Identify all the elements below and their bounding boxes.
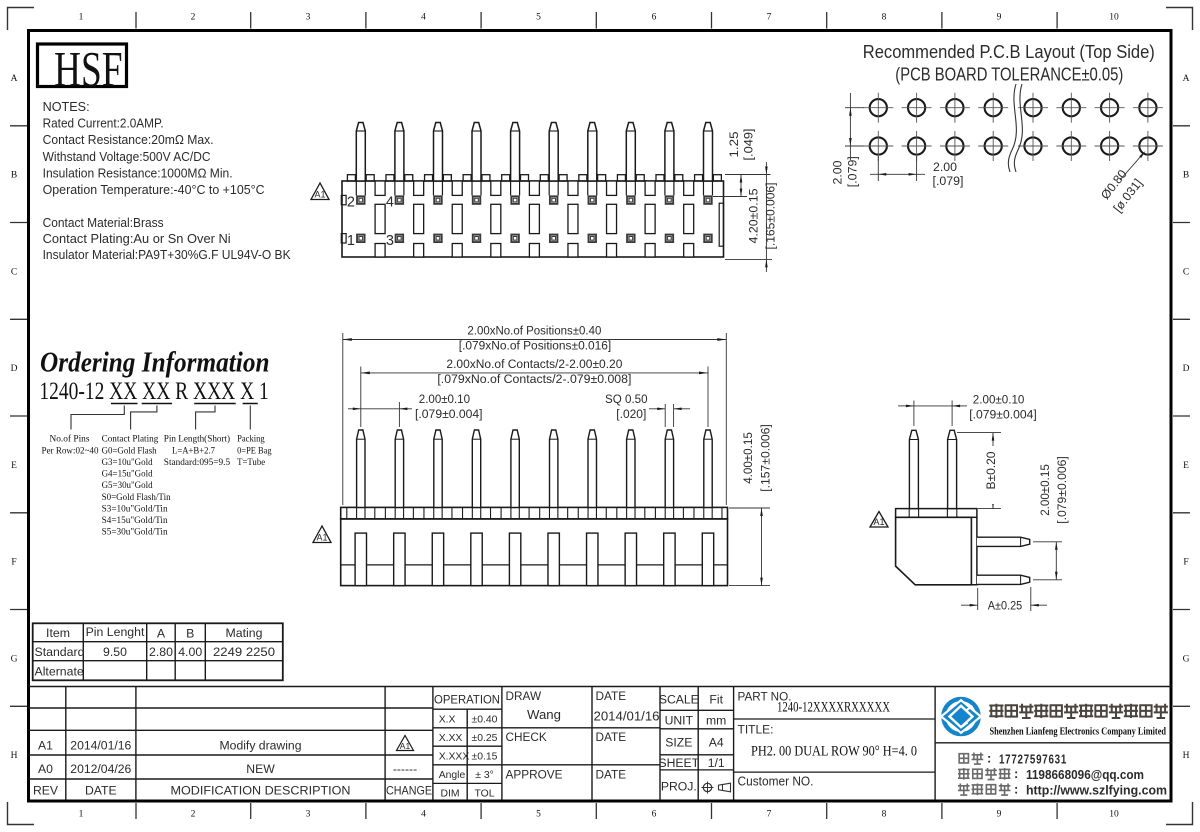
svg-text:NOTES:: NOTES: xyxy=(43,99,90,114)
svg-text:2014/01/16: 2014/01/16 xyxy=(70,738,131,752)
svg-text:[.079xNo.of Contacts/2-.079±0.: [.079xNo.of Contacts/2-.079±0.008] xyxy=(437,372,631,386)
svg-text:[.079±0.004]: [.079±0.004] xyxy=(415,407,483,421)
svg-text:A±0.25: A±0.25 xyxy=(988,599,1023,613)
svg-text:Pin Length(Short): Pin Length(Short) xyxy=(164,434,230,445)
svg-text:TOL: TOL xyxy=(474,789,494,800)
svg-text:G0=Gold Flash: G0=Gold Flash xyxy=(102,445,157,456)
svg-text:±0.40: ±0.40 xyxy=(472,715,498,726)
svg-text:3: 3 xyxy=(306,810,311,820)
svg-text:Contact Resistance:20mΩ Max.: Contact Resistance:20mΩ Max. xyxy=(43,132,214,147)
svg-text:1240-12XXXXRXXXXX: 1240-12XXXXRXXXXX xyxy=(777,700,890,716)
svg-text:A: A xyxy=(11,74,18,84)
svg-text:NEW: NEW xyxy=(246,762,275,776)
svg-text:F: F xyxy=(11,558,16,568)
svg-text:1.25: 1.25 xyxy=(727,131,741,157)
svg-text:DRAW: DRAW xyxy=(506,689,542,703)
svg-text:G3=10u"Gold: G3=10u"Gold xyxy=(102,457,153,468)
svg-text:B: B xyxy=(186,627,194,641)
svg-text:Operation Temperature:-40°C to: Operation Temperature:-40°C to +105°C xyxy=(43,182,265,197)
svg-text:UNIT: UNIT xyxy=(665,713,694,727)
svg-text:2.00xNo.of Positions±0.40: 2.00xNo.of Positions±0.40 xyxy=(467,324,601,338)
svg-text:1198668096@qq.com: 1198668096@qq.com xyxy=(1026,767,1144,782)
svg-text:Contact Plating:Au or Sn Over: Contact Plating:Au or Sn Over Ni xyxy=(43,231,231,246)
svg-text:X.XX: X.XX xyxy=(439,733,463,744)
svg-text:17727597631: 17727597631 xyxy=(999,752,1067,767)
svg-text:OPERATION: OPERATION xyxy=(434,693,500,707)
svg-text:2.00±0.15: 2.00±0.15 xyxy=(1038,464,1052,516)
svg-text:Modify drawing: Modify drawing xyxy=(220,738,302,752)
svg-text:2: 2 xyxy=(347,195,355,211)
svg-text:Rated Current:2.0AMP.: Rated Current:2.0AMP. xyxy=(43,116,164,131)
svg-text:L=A+B+2.7: L=A+B+2.7 xyxy=(172,445,215,456)
svg-text:A1: A1 xyxy=(314,190,325,200)
svg-text:1/1: 1/1 xyxy=(708,756,725,770)
svg-text:Standard: Standard xyxy=(35,645,85,659)
svg-text:B: B xyxy=(11,171,17,181)
svg-text:Withstand Voltage:500V AC/DC: Withstand Voltage:500V AC/DC xyxy=(43,149,211,164)
svg-text:Standard:095=9.5: Standard:095=9.5 xyxy=(164,457,230,468)
svg-text:H: H xyxy=(11,751,18,761)
svg-text:Wang: Wang xyxy=(527,707,561,722)
svg-text:Insulation Resistance:1000MΩ M: Insulation Resistance:1000MΩ Min. xyxy=(43,165,233,180)
svg-text:E: E xyxy=(1183,461,1189,471)
svg-text:Alternate: Alternate xyxy=(35,665,84,679)
svg-text:Contact Plating: Contact Plating xyxy=(102,434,159,445)
svg-text:Pin Lenght: Pin Lenght xyxy=(86,625,145,639)
svg-text:[.079xNo.of Positions±0.016]: [.079xNo.of Positions±0.016] xyxy=(459,339,612,353)
svg-text:Item: Item xyxy=(46,626,70,640)
svg-text::: : xyxy=(987,751,991,766)
svg-text:B±0.20: B±0.20 xyxy=(984,451,998,489)
svg-text:mm: mm xyxy=(706,713,726,727)
svg-text:Angle: Angle xyxy=(439,770,466,781)
svg-text:REV: REV xyxy=(33,783,59,797)
svg-text:7: 7 xyxy=(767,810,772,820)
svg-text:A1: A1 xyxy=(400,741,411,751)
svg-text:2.80: 2.80 xyxy=(149,645,173,659)
svg-text:Insulator Material:PA9T+30%G.F: Insulator Material:PA9T+30%G.F UL94V-O B… xyxy=(43,247,291,262)
svg-text:0=PE Bag: 0=PE Bag xyxy=(237,445,272,456)
svg-text:PH2. 00 DUAL ROW 90° H=4. 0: PH2. 00 DUAL ROW 90° H=4. 0 xyxy=(751,744,917,760)
svg-text:4.00±0.15: 4.00±0.15 xyxy=(741,432,755,484)
svg-text:± 3°: ± 3° xyxy=(475,770,494,781)
svg-text:9.50: 9.50 xyxy=(103,645,127,659)
svg-text:±0.15: ±0.15 xyxy=(472,752,498,763)
svg-text:http://www.szlfying.com: http://www.szlfying.com xyxy=(1026,783,1167,798)
svg-text:CHANGE: CHANGE xyxy=(386,783,432,797)
svg-text:F: F xyxy=(1183,558,1188,568)
svg-text:[.020]: [.020] xyxy=(616,407,646,421)
svg-text:[.049]: [.049] xyxy=(742,129,756,161)
svg-text:10: 10 xyxy=(1109,13,1119,23)
svg-text:±0.25: ±0.25 xyxy=(472,733,498,744)
svg-text:G: G xyxy=(11,654,18,664)
svg-text:2.00: 2.00 xyxy=(933,160,957,174)
svg-text:E: E xyxy=(11,461,17,471)
svg-text:Ordering Information: Ordering Information xyxy=(40,348,270,379)
svg-text:3: 3 xyxy=(386,233,394,249)
svg-text:------: ------ xyxy=(393,762,417,776)
svg-text:2.00±0.10: 2.00±0.10 xyxy=(973,393,1025,407)
svg-text:3: 3 xyxy=(306,13,311,23)
svg-text:8: 8 xyxy=(882,810,887,820)
svg-text:G4=15u"Gold: G4=15u"Gold xyxy=(102,469,153,480)
svg-text:APPROVE: APPROVE xyxy=(506,768,563,782)
svg-text:[.079±0.006]: [.079±0.006] xyxy=(1055,456,1069,524)
svg-text:4.20±0.15: 4.20±0.15 xyxy=(747,188,761,243)
svg-text:4: 4 xyxy=(421,810,426,820)
svg-text:[.157±0.006]: [.157±0.006] xyxy=(759,424,773,492)
svg-text:T=Tube: T=Tube xyxy=(237,457,266,468)
svg-text:HSF: HSF xyxy=(54,41,123,97)
svg-text:A4: A4 xyxy=(709,736,724,750)
svg-text:1: 1 xyxy=(79,13,84,23)
svg-text:S4=15u"Gold/Tin: S4=15u"Gold/Tin xyxy=(102,515,168,526)
svg-text:SCALE: SCALE xyxy=(659,692,699,706)
svg-text:Contact Material:Brass: Contact Material:Brass xyxy=(43,215,164,230)
svg-text:5: 5 xyxy=(536,13,541,23)
svg-text:B: B xyxy=(1183,171,1189,181)
svg-text:[.079±0.004]: [.079±0.004] xyxy=(969,408,1037,422)
svg-text:DATE: DATE xyxy=(85,783,117,797)
svg-text:2: 2 xyxy=(191,13,196,23)
svg-text:CHECK: CHECK xyxy=(506,730,547,744)
svg-text:Shenzhen Lianfeng Electronics: Shenzhen Lianfeng Electronics Company Li… xyxy=(990,727,1167,738)
svg-text:G5=30u"Gold: G5=30u"Gold xyxy=(102,480,153,491)
svg-text:SHEET: SHEET xyxy=(658,756,699,770)
svg-text:4: 4 xyxy=(421,13,426,23)
svg-text:4: 4 xyxy=(386,195,394,211)
svg-text:Per Row:02~40: Per Row:02~40 xyxy=(42,445,99,456)
svg-text::: : xyxy=(1014,766,1018,781)
svg-text:6: 6 xyxy=(652,810,657,820)
svg-text:A1: A1 xyxy=(873,517,884,527)
svg-text:5: 5 xyxy=(536,810,541,820)
svg-text:No.of Pins: No.of Pins xyxy=(50,434,90,445)
svg-text:PROJ.: PROJ. xyxy=(661,780,697,794)
svg-text:10: 10 xyxy=(1109,810,1119,820)
svg-text:DATE: DATE xyxy=(596,730,627,744)
svg-text:D: D xyxy=(1183,364,1190,374)
svg-text:DATE: DATE xyxy=(596,689,627,703)
svg-text:Customer NO.: Customer NO. xyxy=(738,775,814,789)
svg-text:2014/01/16: 2014/01/16 xyxy=(594,709,660,724)
svg-text:C: C xyxy=(1183,267,1189,277)
svg-text:A0: A0 xyxy=(38,762,53,776)
svg-text:S5=30u"Gold/Tin: S5=30u"Gold/Tin xyxy=(102,527,168,538)
svg-text:4.00: 4.00 xyxy=(178,645,202,659)
svg-text:Fit: Fit xyxy=(709,692,723,706)
svg-text:SIZE: SIZE xyxy=(665,736,692,750)
svg-text:2.00xNo.of Contacts/2-2.00±0.2: 2.00xNo.of Contacts/2-2.00±0.20 xyxy=(446,357,622,371)
svg-text:S0=Gold Flash/Tin: S0=Gold Flash/Tin xyxy=(102,492,171,503)
svg-text:8: 8 xyxy=(882,13,887,23)
svg-text:Packing: Packing xyxy=(237,434,265,445)
svg-text::: : xyxy=(1014,782,1018,797)
svg-text:C: C xyxy=(11,267,17,277)
svg-text:1240-12 XX XX R XXX X 1: 1240-12 XX XX R XXX X 1 xyxy=(39,378,268,405)
svg-text:G: G xyxy=(1183,654,1190,664)
svg-text:SQ 0.50: SQ 0.50 xyxy=(605,392,648,406)
svg-text:TITLE:: TITLE: xyxy=(738,723,774,737)
svg-text:DIM: DIM xyxy=(440,789,459,800)
svg-text:X.XXX: X.XXX xyxy=(439,752,470,763)
svg-text:A1: A1 xyxy=(38,738,53,752)
svg-text:6: 6 xyxy=(652,13,657,23)
svg-text:MODIFICATION DESCRIPTION: MODIFICATION DESCRIPTION xyxy=(171,783,351,797)
svg-text:9: 9 xyxy=(997,810,1002,820)
svg-text:[.165±0.006]: [.165±0.006] xyxy=(764,183,778,250)
svg-text:1: 1 xyxy=(347,233,355,249)
svg-text:9: 9 xyxy=(997,13,1002,23)
svg-text:D: D xyxy=(11,364,18,374)
svg-text:A1: A1 xyxy=(316,533,327,543)
svg-text:A: A xyxy=(157,627,166,641)
svg-text:[.079]: [.079] xyxy=(846,156,860,187)
svg-text:7: 7 xyxy=(767,13,772,23)
svg-text:2249 2250: 2249 2250 xyxy=(213,645,275,659)
svg-text:(PCB BOARD TOLERANCE±0.05): (PCB BOARD TOLERANCE±0.05) xyxy=(895,65,1123,85)
svg-text:Mating: Mating xyxy=(226,626,263,640)
svg-text:X.X: X.X xyxy=(439,715,456,726)
svg-text:[.079]: [.079] xyxy=(933,174,964,188)
svg-text:2: 2 xyxy=(191,810,196,820)
svg-text:2012/04/26: 2012/04/26 xyxy=(70,762,131,776)
svg-text:1: 1 xyxy=(79,810,84,820)
svg-text:H: H xyxy=(1183,751,1190,761)
svg-text:DATE: DATE xyxy=(596,768,627,782)
svg-text:A: A xyxy=(1183,74,1190,84)
svg-text:Recommended P.C.B Layout (Top: Recommended P.C.B Layout (Top Side) xyxy=(863,42,1155,62)
svg-text:2.00: 2.00 xyxy=(831,160,845,184)
svg-text:2.00±0.10: 2.00±0.10 xyxy=(419,392,470,406)
svg-text:S3=10u"Gold/Tin: S3=10u"Gold/Tin xyxy=(102,503,168,514)
